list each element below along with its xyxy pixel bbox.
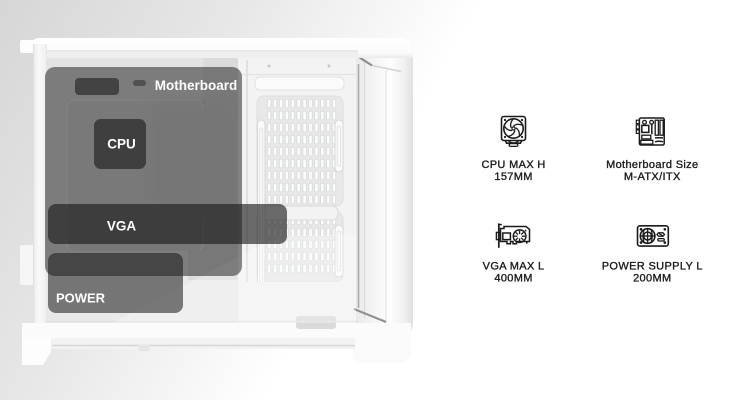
svg-text:POWER: POWER <box>56 290 106 305</box>
svg-text:400MM: 400MM <box>494 272 532 284</box>
svg-text:VGA: VGA <box>107 219 137 234</box>
svg-text:Motherboard: Motherboard <box>155 78 238 93</box>
svg-text:CPU: CPU <box>107 137 136 152</box>
svg-text:CPU MAX H: CPU MAX H <box>481 159 545 171</box>
svg-text:Motherboard Size: Motherboard Size <box>606 159 698 171</box>
svg-text:200MM: 200MM <box>633 272 671 284</box>
svg-text:157MM: 157MM <box>494 171 532 183</box>
svg-text:M-ATX/ITX: M-ATX/ITX <box>624 171 681 183</box>
svg-text:POWER SUPPLY L: POWER SUPPLY L <box>602 260 703 272</box>
svg-text:VGA MAX L: VGA MAX L <box>483 260 545 272</box>
